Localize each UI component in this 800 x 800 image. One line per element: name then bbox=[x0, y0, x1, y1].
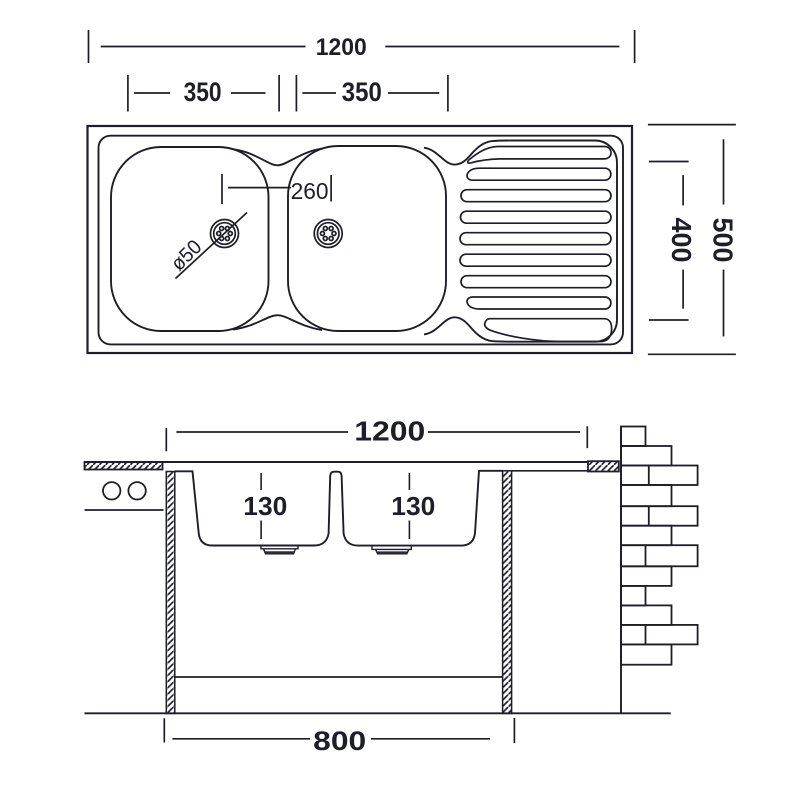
svg-text:130: 130 bbox=[391, 491, 435, 521]
svg-text:ø50: ø50 bbox=[166, 235, 206, 275]
svg-text:130: 130 bbox=[243, 491, 287, 521]
svg-text:350: 350 bbox=[184, 77, 222, 107]
svg-text:1200: 1200 bbox=[354, 416, 425, 447]
svg-text:800: 800 bbox=[313, 726, 366, 756]
svg-text:260: 260 bbox=[291, 178, 329, 204]
svg-text:1200: 1200 bbox=[316, 34, 367, 61]
svg-text:500: 500 bbox=[708, 218, 739, 263]
svg-text:350: 350 bbox=[342, 77, 382, 107]
svg-text:400: 400 bbox=[666, 218, 697, 263]
